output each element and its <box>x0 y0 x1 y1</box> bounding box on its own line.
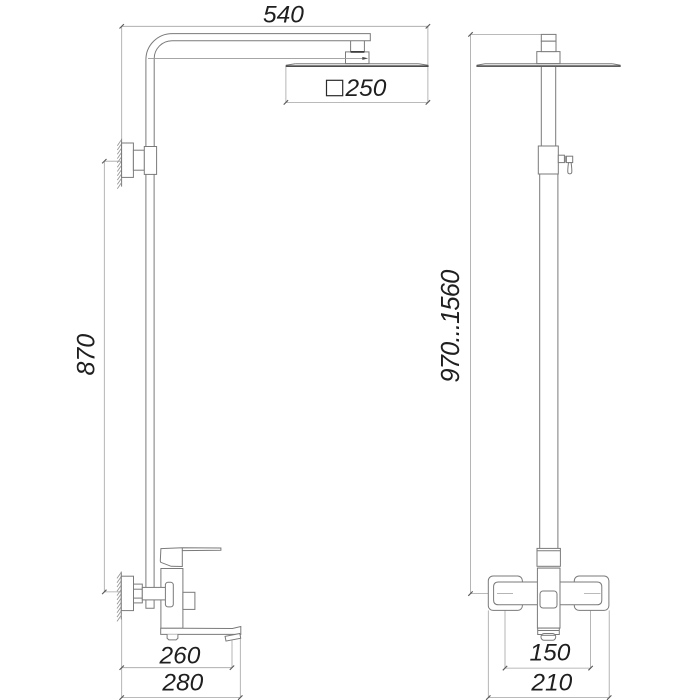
svg-text:870: 870 <box>73 334 101 376</box>
svg-text:150: 150 <box>529 639 570 666</box>
svg-text:260: 260 <box>159 643 201 670</box>
svg-text:280: 280 <box>161 670 203 697</box>
svg-text:970...1560: 970...1560 <box>437 270 465 383</box>
svg-text:540: 540 <box>263 2 304 29</box>
svg-text:250: 250 <box>345 75 387 102</box>
svg-text:210: 210 <box>530 670 572 697</box>
